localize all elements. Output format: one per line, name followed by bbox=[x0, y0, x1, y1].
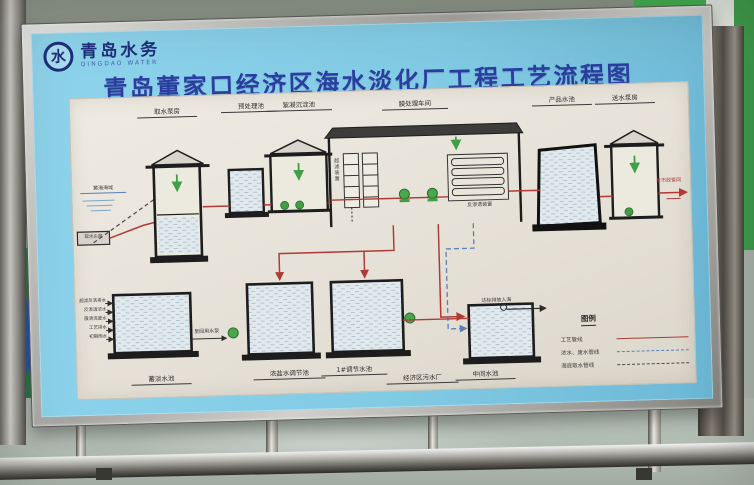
reuse-label: 至回用水泵 bbox=[194, 329, 219, 335]
product-water-tank bbox=[530, 144, 606, 231]
legend-item-intake: 海底取水管线 bbox=[561, 361, 594, 370]
brine-tank-2 bbox=[324, 280, 411, 358]
logo-subtext: QINGDAO WATER bbox=[81, 60, 161, 69]
sea-waves bbox=[82, 200, 114, 211]
inlet-label: 超滤反洗排水 bbox=[75, 299, 106, 304]
to-network-label: 至市政管网 bbox=[656, 178, 681, 184]
intake-head-label: 取水头部 bbox=[78, 234, 108, 240]
inlet-label: 初期雨水 bbox=[76, 335, 107, 340]
brine-tank-1 bbox=[227, 283, 321, 362]
pretreatment-pump-house bbox=[264, 139, 334, 212]
pretreatment-tank bbox=[224, 169, 269, 218]
station-label-membrane-workshop: 膜处理车间 bbox=[382, 100, 448, 111]
sign-board: 水 青岛水务 QINGDAO WATER 青岛董家口经济区海水淡化厂工程工艺流程… bbox=[20, 4, 723, 427]
photo-of-process-flow-sign: 水 青岛水务 QINGDAO WATER 青岛董家口经济区海水淡化厂工程工艺流程… bbox=[0, 0, 754, 485]
inlet-label: 工艺排水 bbox=[76, 326, 107, 331]
delivery-pump-house bbox=[604, 130, 666, 219]
legend-title: 图例 bbox=[581, 313, 596, 326]
station-label-intake: 取水泵房 bbox=[137, 108, 197, 119]
diagram-sheet: 取水泵房 预处理池 絮凝沉淀池 膜处理车间 产品水池 送水泵房 蓄淡水池 浓盐水… bbox=[69, 81, 697, 400]
intermediate-tank bbox=[403, 303, 548, 366]
inlet-label: 膜清洗废水 bbox=[76, 317, 107, 322]
qingdao-water-logo-icon: 水 bbox=[43, 41, 74, 72]
station-label-sedimentation: 絮凝沉淀池 bbox=[266, 101, 332, 112]
legend-item-process: 工艺管线 bbox=[560, 335, 582, 344]
stand-foot bbox=[96, 468, 112, 480]
station-label-intermediate-tank: 中间水池 bbox=[455, 370, 515, 381]
station-label-delivery-pump: 送水泵房 bbox=[595, 94, 655, 105]
stand-foot bbox=[636, 468, 652, 480]
storage-tank bbox=[106, 293, 199, 360]
station-label-brine-tank-2: 1#调节水池 bbox=[321, 366, 387, 377]
reverse-osmosis-rack bbox=[447, 153, 508, 201]
ultrafiltration-rack bbox=[343, 153, 379, 222]
legend-item-waste: 浓水、废水管线 bbox=[561, 348, 600, 357]
blue-panel: 水 青岛水务 QINGDAO WATER 青岛董家口经济区海水淡化厂工程工艺流程… bbox=[31, 15, 713, 418]
inlet-label: 反渗透浓水 bbox=[75, 308, 106, 313]
station-label-product-tank: 产品水池 bbox=[532, 96, 592, 107]
intake-pump-tower bbox=[145, 150, 212, 264]
sea-area-label: 黄海海域 bbox=[80, 186, 126, 194]
outfall-label: 达标排放入海 bbox=[481, 298, 511, 305]
process-flow-drawing bbox=[70, 82, 698, 401]
station-label-storage-tank: 蓄淡水池 bbox=[131, 375, 191, 386]
uf-unit-label: 超滤装置 bbox=[332, 158, 338, 182]
